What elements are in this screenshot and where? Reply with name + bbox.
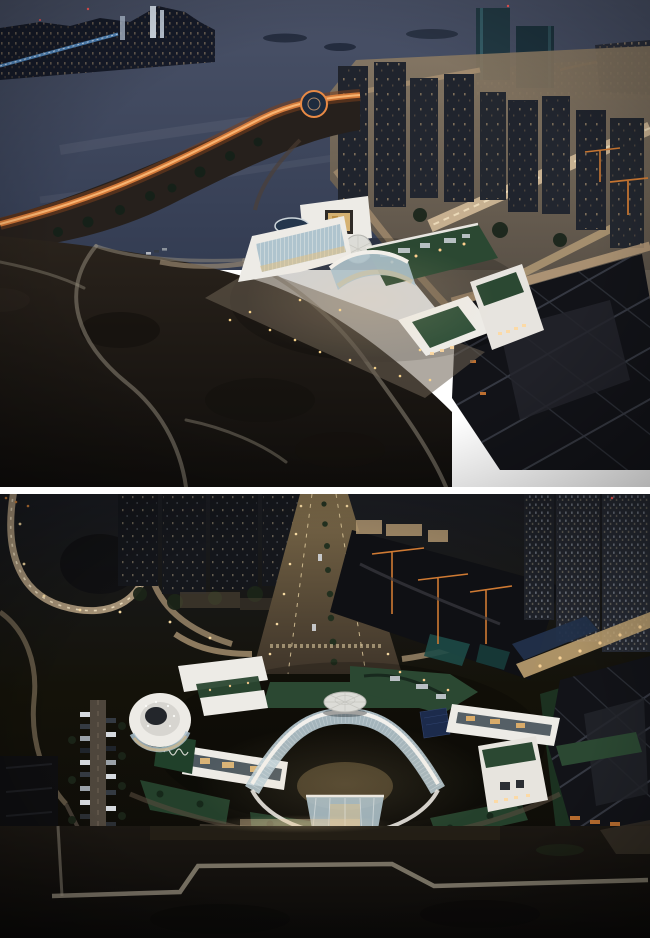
vignette	[0, 0, 650, 487]
photo-stack	[0, 0, 650, 938]
figure-top-photo	[0, 0, 650, 487]
vignette	[0, 494, 650, 938]
figure-bottom-photo	[0, 494, 650, 938]
top-aerial-photo	[0, 0, 650, 487]
bottom-aerial-photo	[0, 494, 650, 938]
photo-collage-page	[0, 0, 650, 938]
